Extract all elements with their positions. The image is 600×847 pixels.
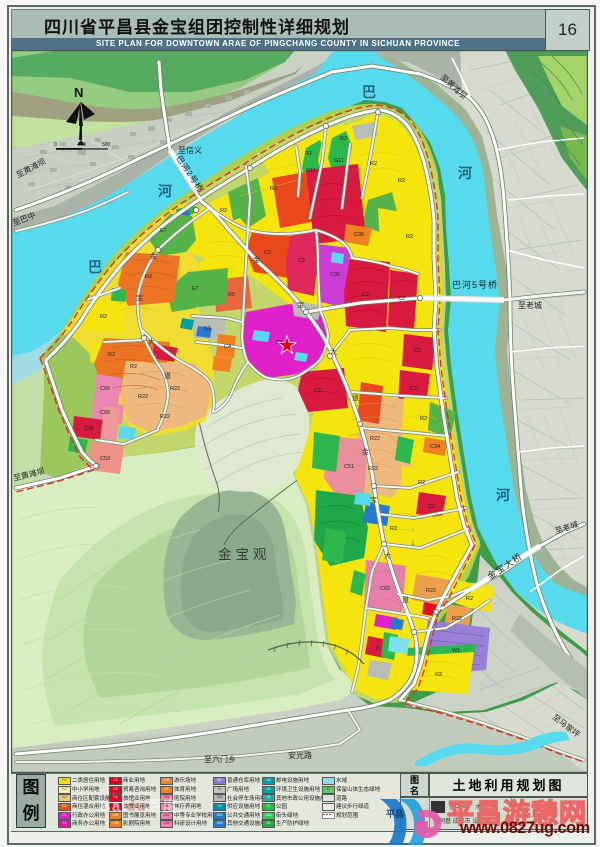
svg-text:C: C xyxy=(376,646,380,652)
svg-text:R2: R2 xyxy=(420,416,427,422)
svg-text:金: 金 xyxy=(253,255,260,264)
svg-text:大: 大 xyxy=(148,337,155,346)
svg-text:R22: R22 xyxy=(160,414,170,420)
svg-text:C2: C2 xyxy=(298,258,305,264)
svg-text:0: 0 xyxy=(54,142,57,148)
svg-text:R2: R2 xyxy=(340,136,347,142)
svg-text:巴河5号桥: 巴河5号桥 xyxy=(452,279,498,290)
svg-text:C62: C62 xyxy=(380,586,390,592)
svg-text:R2: R2 xyxy=(398,178,405,184)
svg-text:河: 河 xyxy=(158,183,172,199)
svg-text:C2: C2 xyxy=(362,292,369,298)
svg-text:C2: C2 xyxy=(398,296,405,302)
svg-text:宝: 宝 xyxy=(297,300,304,309)
svg-text:C26: C26 xyxy=(84,426,94,432)
svg-text:R2: R2 xyxy=(220,208,227,214)
svg-text:R22: R22 xyxy=(452,616,462,622)
svg-text:R22: R22 xyxy=(426,588,436,594)
svg-text:平昌: 平昌 xyxy=(386,809,404,819)
svg-text:R2: R2 xyxy=(305,151,312,157)
svg-text:E7: E7 xyxy=(160,228,167,234)
svg-text:至六门乡: 至六门乡 xyxy=(204,754,236,764)
svg-text:C2: C2 xyxy=(410,386,417,392)
svg-text:C2: C2 xyxy=(428,504,435,510)
svg-text:R2: R2 xyxy=(108,352,115,358)
svg-text:C2: C2 xyxy=(314,388,321,394)
svg-text:C36: C36 xyxy=(354,232,364,238)
svg-text:R2: R2 xyxy=(270,186,277,192)
svg-text:G11: G11 xyxy=(334,158,344,164)
svg-text:R2: R2 xyxy=(418,480,425,486)
svg-text:C65: C65 xyxy=(100,410,110,416)
svg-text:大: 大 xyxy=(330,347,337,356)
svg-text:R2: R2 xyxy=(100,314,107,320)
svg-text:E7: E7 xyxy=(192,286,199,292)
svg-text:C53: C53 xyxy=(100,456,110,462)
svg-text:河: 河 xyxy=(458,165,472,181)
svg-text:至老城: 至老城 xyxy=(518,300,542,310)
svg-text:S3: S3 xyxy=(204,326,211,332)
svg-text:R2: R2 xyxy=(145,274,152,280)
svg-text:R2: R2 xyxy=(435,672,442,678)
svg-text:C1: C1 xyxy=(276,340,283,346)
svg-text:R22: R22 xyxy=(138,394,148,400)
svg-text:道: 道 xyxy=(402,595,409,604)
svg-text:R2: R2 xyxy=(406,234,413,240)
svg-text:大: 大 xyxy=(384,551,391,560)
svg-text:R22: R22 xyxy=(370,436,380,442)
svg-text:250: 250 xyxy=(78,142,87,148)
svg-text:至信义: 至信义 xyxy=(178,145,202,155)
svg-text:R5: R5 xyxy=(228,292,235,298)
svg-text:C34: C34 xyxy=(430,444,440,450)
svg-text:G11: G11 xyxy=(306,168,316,174)
svg-text:W1: W1 xyxy=(452,648,460,654)
svg-text:宝: 宝 xyxy=(370,495,377,504)
svg-text:金: 金 xyxy=(362,447,369,456)
svg-text:巴: 巴 xyxy=(88,259,102,275)
svg-text:R2: R2 xyxy=(370,161,377,167)
svg-text:巴: 巴 xyxy=(362,84,376,100)
svg-text:N: N xyxy=(74,85,83,100)
svg-text:R22: R22 xyxy=(368,466,378,472)
svg-text:道: 道 xyxy=(164,371,171,380)
svg-text:道: 道 xyxy=(352,393,359,402)
svg-text:C65: C65 xyxy=(100,386,110,392)
svg-text:安光路: 安光路 xyxy=(288,750,312,760)
svg-text:500: 500 xyxy=(102,142,111,148)
svg-text:金宝观: 金宝观 xyxy=(218,547,271,562)
svg-text:宝: 宝 xyxy=(136,293,143,302)
svg-text:R2: R2 xyxy=(130,364,137,370)
svg-text:R22: R22 xyxy=(170,386,180,392)
svg-text:C2: C2 xyxy=(414,348,421,354)
svg-text:金: 金 xyxy=(150,251,157,260)
svg-text:R2: R2 xyxy=(466,596,473,602)
svg-text:C2: C2 xyxy=(264,250,271,256)
svg-text:R2: R2 xyxy=(390,526,397,532)
svg-text:C35: C35 xyxy=(330,272,340,278)
svg-text:C4: C4 xyxy=(224,344,231,350)
svg-text:C51: C51 xyxy=(344,464,354,470)
svg-text:河: 河 xyxy=(496,487,510,503)
